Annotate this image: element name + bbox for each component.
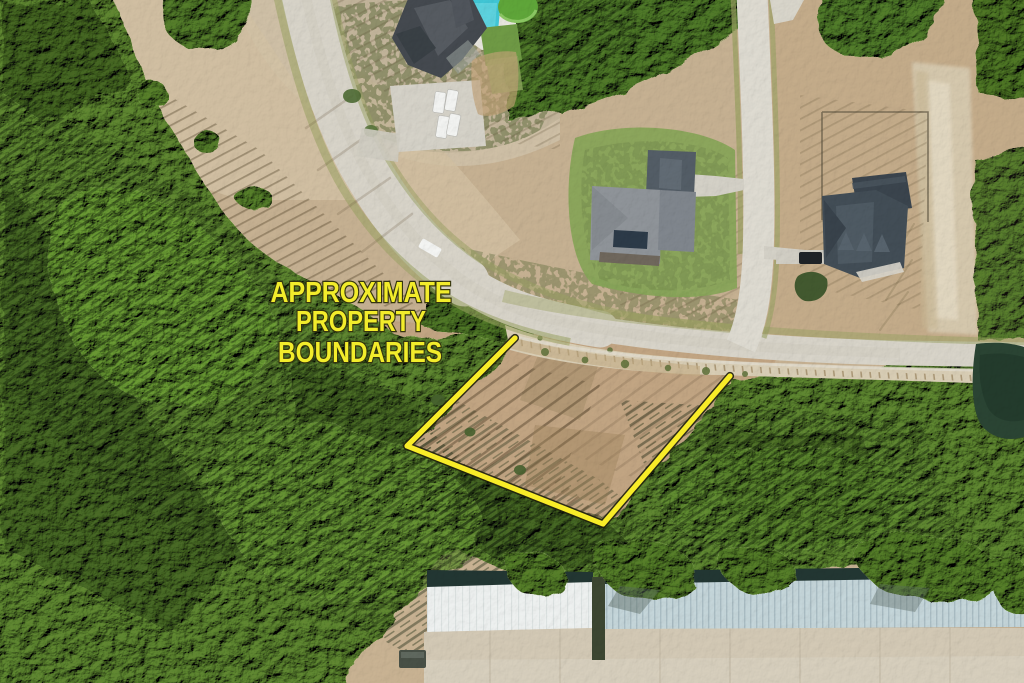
svg-text:BOUNDARIES: BOUNDARIES <box>278 337 442 369</box>
svg-text:PROPERTY: PROPERTY <box>296 306 426 338</box>
svg-text:APPROXIMATE: APPROXIMATE <box>271 277 452 309</box>
